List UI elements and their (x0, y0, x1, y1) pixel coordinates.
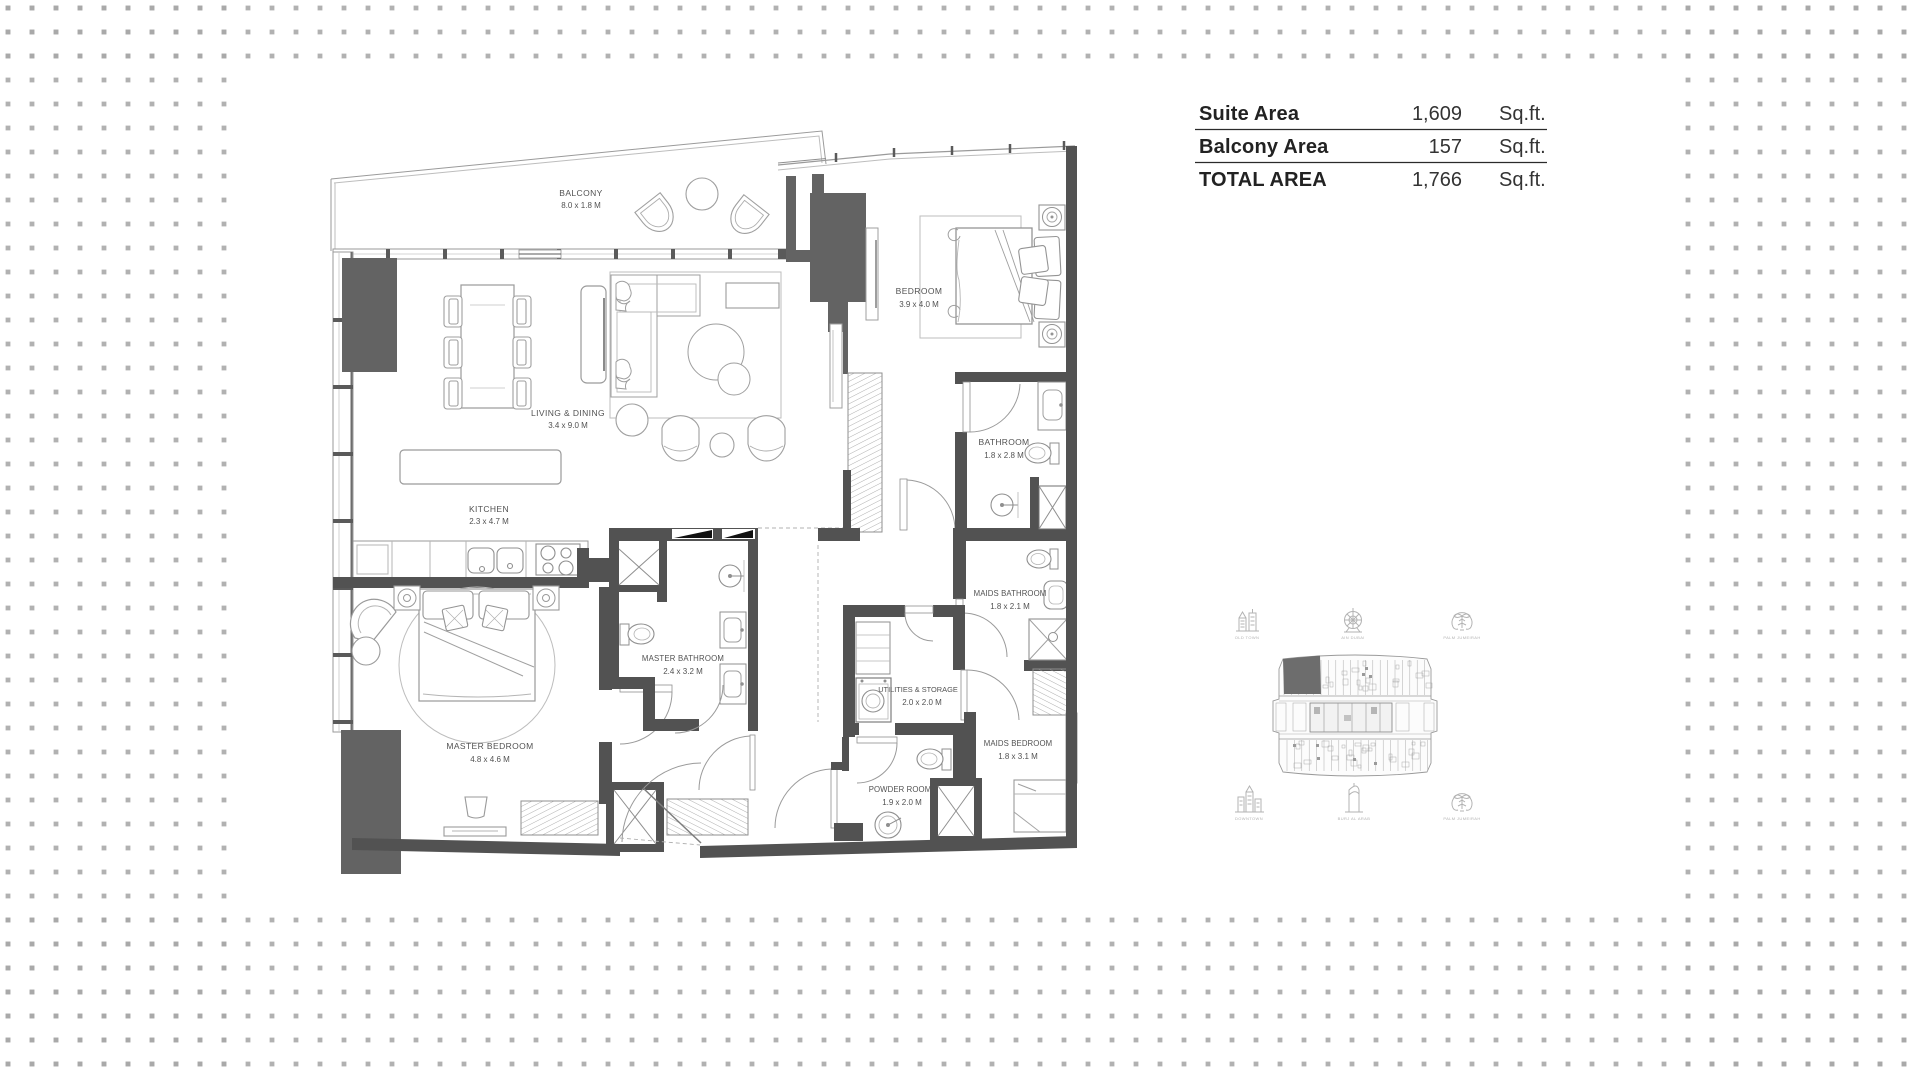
svg-text:1.8 x 2.1 M: 1.8 x 2.1 M (990, 602, 1030, 611)
svg-text:LIVING & DINING: LIVING & DINING (531, 408, 605, 418)
svg-text:KITCHEN: KITCHEN (469, 504, 509, 514)
svg-text:Sq.ft.: Sq.ft. (1499, 103, 1546, 125)
svg-text:1,609: 1,609 (1412, 103, 1462, 125)
svg-text:2.4 x 3.2 M: 2.4 x 3.2 M (663, 667, 703, 676)
svg-text:2.0 x 2.0 M: 2.0 x 2.0 M (902, 698, 942, 707)
svg-text:Suite Area: Suite Area (1199, 103, 1300, 125)
svg-text:BURJ AL ARAB: BURJ AL ARAB (1338, 816, 1371, 821)
svg-text:MASTER BEDROOM: MASTER BEDROOM (446, 741, 533, 751)
svg-text:POWDER ROOM: POWDER ROOM (869, 785, 932, 794)
svg-text:1.8 x 2.8 M: 1.8 x 2.8 M (984, 451, 1024, 460)
svg-text:1.8 x 3.1 M: 1.8 x 3.1 M (998, 752, 1038, 761)
svg-text:MASTER BATHROOM: MASTER BATHROOM (642, 654, 724, 663)
svg-text:Sq.ft.: Sq.ft. (1499, 169, 1546, 191)
svg-text:Sq.ft.: Sq.ft. (1499, 136, 1546, 158)
svg-text:3.9 x 4.0 M: 3.9 x 4.0 M (899, 300, 939, 309)
svg-text:4.8 x 4.6 M: 4.8 x 4.6 M (470, 755, 510, 764)
svg-text:PALM JUMEIRAH: PALM JUMEIRAH (1443, 816, 1480, 821)
svg-text:BALCONY: BALCONY (559, 188, 602, 198)
svg-text:Balcony Area: Balcony Area (1199, 136, 1329, 158)
svg-text:3.4 x 9.0 M: 3.4 x 9.0 M (548, 421, 588, 430)
svg-text:TOTAL AREA: TOTAL AREA (1199, 169, 1327, 191)
svg-text:OLD TOWN: OLD TOWN (1235, 635, 1260, 640)
svg-text:8.0 x 1.8 M: 8.0 x 1.8 M (561, 201, 601, 210)
svg-text:1.9 x 2.0 M: 1.9 x 2.0 M (882, 798, 922, 807)
svg-text:BEDROOM: BEDROOM (896, 286, 943, 296)
svg-text:MAIDS BEDROOM: MAIDS BEDROOM (984, 739, 1052, 748)
svg-text:UTILITIES & STORAGE: UTILITIES & STORAGE (878, 685, 958, 694)
svg-text:1,766: 1,766 (1412, 169, 1462, 191)
svg-text:157: 157 (1429, 136, 1462, 158)
svg-text:2.3 x 4.7 M: 2.3 x 4.7 M (469, 517, 509, 526)
svg-text:PALM JUMEIRAH: PALM JUMEIRAH (1443, 635, 1480, 640)
svg-text:DOWNTOWN: DOWNTOWN (1235, 816, 1263, 821)
svg-text:BATHROOM: BATHROOM (979, 437, 1030, 447)
svg-text:MAIDS BATHROOM: MAIDS BATHROOM (974, 589, 1047, 598)
svg-text:AIN DUBAI: AIN DUBAI (1341, 635, 1365, 640)
